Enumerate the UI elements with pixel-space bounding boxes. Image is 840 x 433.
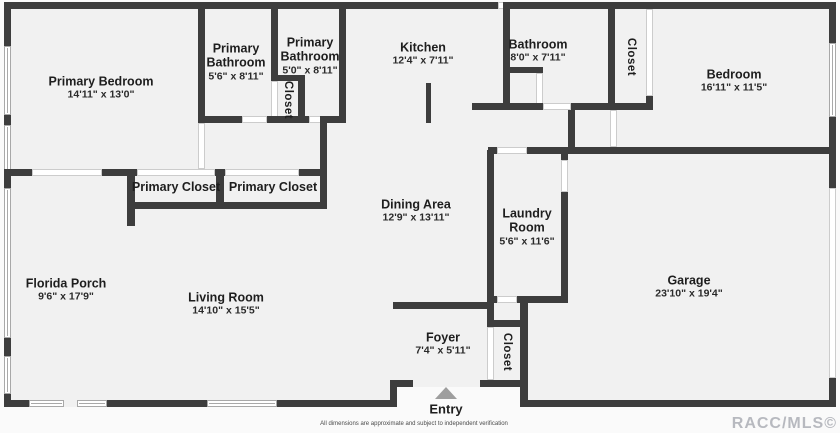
room-label-primary-closet-2: Primary Closet [229, 180, 317, 194]
entry-arrow-icon [435, 387, 457, 399]
door-opening [198, 123, 205, 169]
door-opening [646, 9, 653, 96]
wall [393, 302, 494, 309]
window [207, 400, 277, 407]
room-label-living-room: Living Room 14'10" x 15'5" [188, 290, 264, 317]
room-label-garage: Garage 23'10" x 19'4" [655, 273, 723, 300]
door-opening [610, 110, 617, 147]
wall [4, 176, 11, 188]
room-label-dining-area: Dining Area 12'9" x 13'11" [381, 197, 451, 224]
wall [4, 400, 29, 407]
wall [487, 150, 494, 320]
room-label-bedroom-closet: Closet [625, 38, 637, 76]
room-dims: 12'9" x 13'11" [381, 213, 451, 225]
wall [520, 303, 528, 407]
room-name: Florida Porch [26, 276, 107, 290]
wall [215, 169, 225, 176]
wall [472, 103, 543, 110]
wall [571, 103, 653, 110]
room-label-primary-bathroom-closet: Closet [282, 81, 294, 119]
wall [320, 116, 327, 209]
wall [829, 2, 836, 43]
wall [4, 2, 836, 9]
entry-label: Entry [429, 402, 462, 417]
room-dims: 5'0" x 8'11" [267, 65, 353, 77]
room-label-bathroom: Bathroom 8'0" x 7'11" [508, 37, 567, 64]
wall [527, 147, 829, 154]
room-name: Bedroom [701, 67, 767, 81]
room-dims: 8'0" x 7'11" [508, 53, 567, 65]
room-dims: 14'11" x 13'0" [49, 90, 154, 102]
kitchen-island [426, 83, 431, 123]
room-label-primary-bedroom: Primary Bedroom 14'11" x 13'0" [49, 74, 154, 101]
room-dims: 16'11" x 11'5" [701, 83, 767, 95]
floor-plan: Primary Bedroom 14'11" x 13'0" Primary B… [0, 0, 840, 433]
room-dims: 23'10" x 19'4" [655, 289, 723, 301]
wall [390, 380, 397, 407]
room-dims: 14'10" x 15'5" [188, 306, 264, 318]
wall [487, 320, 527, 327]
room-dims: 9'6" x 17'9" [26, 292, 107, 304]
door-opening [271, 81, 278, 117]
window [77, 400, 107, 407]
door-opening [32, 169, 102, 176]
door-opening [561, 160, 568, 192]
room-name: Primary Bathroom [267, 35, 353, 64]
room-dims: 12'4" x 7'11" [392, 56, 453, 68]
room-name: Kitchen [392, 40, 453, 54]
disclaimer-text: All dimensions are approximate and subje… [320, 421, 508, 427]
room-name: Garage [655, 273, 723, 287]
door-opening [137, 169, 215, 176]
room-label-florida-porch: Florida Porch 9'6" x 17'9" [26, 276, 107, 303]
room-name: Primary Bedroom [49, 74, 154, 88]
room-name: Dining Area [381, 197, 451, 211]
window [4, 356, 11, 394]
room-dims: 5'6" x 11'6" [495, 236, 559, 248]
wall [4, 2, 11, 46]
door-opening [487, 327, 494, 380]
room-label-foyer: Foyer 7'4" x 5'11" [415, 330, 470, 357]
room-label-laundry-room: Laundry Room 5'6" x 11'6" [495, 206, 559, 247]
wall [561, 192, 568, 303]
wall [277, 400, 397, 407]
wall [520, 400, 836, 407]
watermark: RACC/MLS© [732, 415, 837, 433]
room-name: Foyer [415, 330, 470, 344]
door-opening [543, 103, 571, 110]
wall [127, 202, 327, 209]
room-name: Bathroom [508, 37, 567, 51]
room-dims: 7'4" x 5'11" [415, 346, 470, 358]
room-label-bedroom: Bedroom 16'11" x 11'5" [701, 67, 767, 94]
window [29, 400, 64, 407]
wall [517, 296, 568, 303]
wall [397, 380, 413, 387]
door-opening [225, 169, 299, 176]
wall [608, 2, 615, 110]
door-opening [497, 147, 527, 154]
room-name: Living Room [188, 290, 264, 304]
door-opening [536, 73, 543, 105]
wall [4, 169, 32, 176]
room-label-primary-closet-1: Primary Closet [132, 180, 220, 194]
room-label-primary-bathroom-2: Primary Bathroom 5'0" x 8'11" [267, 35, 353, 76]
wall [829, 117, 836, 188]
room-name: Laundry Room [495, 206, 559, 235]
garage-door [829, 188, 836, 378]
window [4, 188, 11, 338]
window [4, 46, 11, 115]
room-label-foyer-closet: Closet [501, 333, 513, 371]
room-name: Primary Closet [229, 180, 317, 194]
window [829, 43, 836, 117]
room-name: Primary Closet [132, 180, 220, 194]
wall [561, 147, 568, 160]
wall [4, 338, 11, 356]
wall [4, 115, 11, 125]
door-opening [242, 116, 267, 123]
wall [107, 400, 207, 407]
wall [198, 116, 242, 123]
door-opening [497, 296, 517, 303]
room-label-kitchen: Kitchen 12'4" x 7'11" [392, 40, 453, 67]
